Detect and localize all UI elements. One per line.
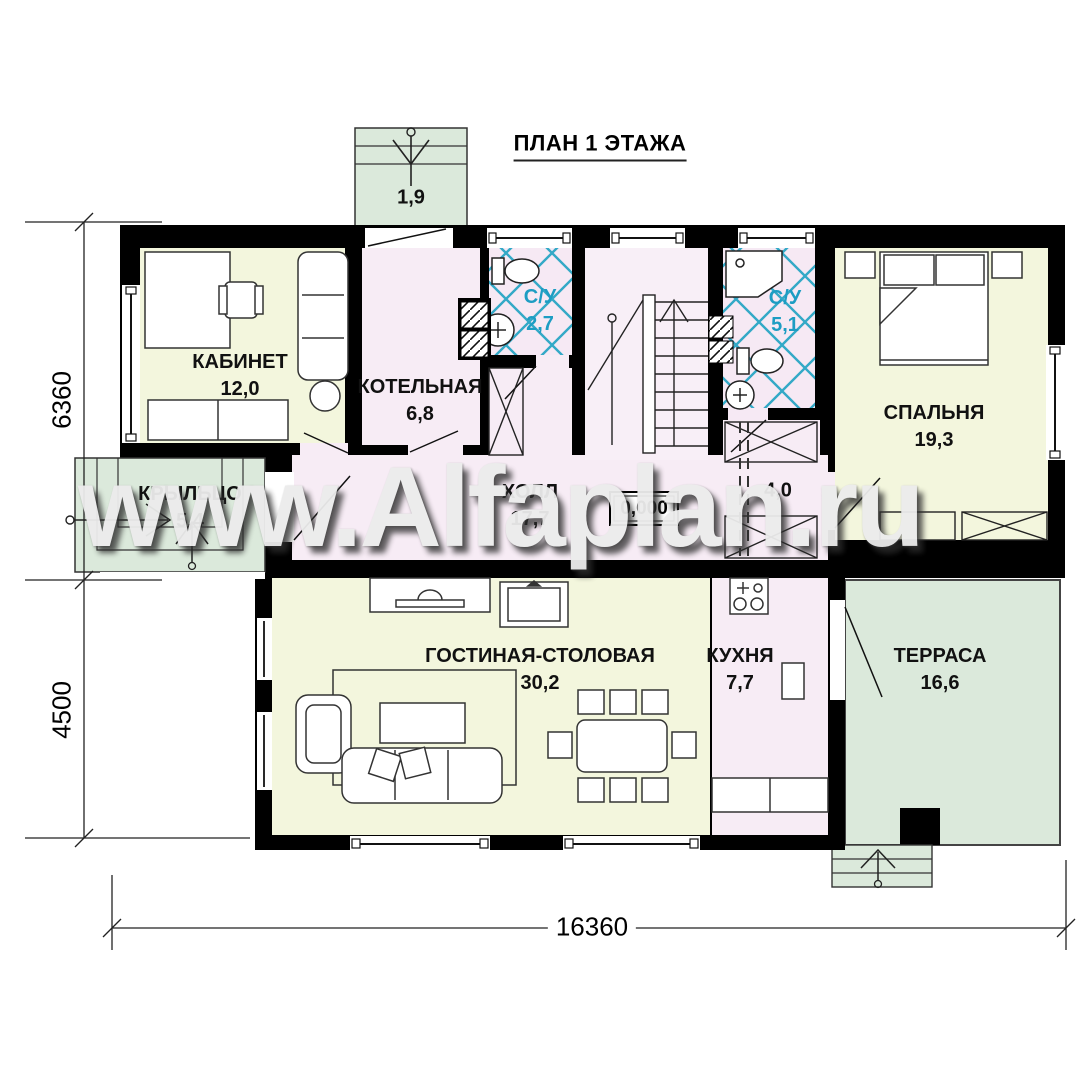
entry-porch xyxy=(355,128,467,228)
room-label-spalnya: СПАЛЬНЯ 19,3 xyxy=(884,400,985,454)
closet-near-su xyxy=(489,368,572,455)
chair-icon xyxy=(610,778,636,802)
room-label-entry-porch: 1,9 xyxy=(397,185,425,212)
terrace-steps xyxy=(832,845,932,888)
sofa-icon xyxy=(298,252,348,380)
room-label-corridor: 4,0 xyxy=(764,478,792,505)
side-table-icon xyxy=(310,381,340,411)
desk-icon xyxy=(145,252,230,348)
chair-icon xyxy=(225,282,257,318)
floor-plan-drawing xyxy=(0,0,1080,1080)
room-holl xyxy=(292,455,828,560)
dimension-left-top: 6360 xyxy=(47,365,78,435)
dimension-bottom: 16360 xyxy=(548,912,636,943)
toilet-icon xyxy=(737,348,749,374)
floor-plan-page: ПЛАН 1 ЭТАЖА 1,9 КАБИНЕТ 12,0 КОТЕЛЬНАЯ … xyxy=(0,0,1080,1080)
chair-icon xyxy=(578,778,604,802)
coffee-table-icon xyxy=(380,703,465,743)
room-label-kotelnaya: КОТЕЛЬНАЯ 6,8 xyxy=(358,374,483,428)
room-label-kabinet: КАБИНЕТ 12,0 xyxy=(192,349,287,403)
nightstand-icon xyxy=(992,252,1022,278)
dining-table-icon xyxy=(577,720,667,772)
room-label-kryltso: КРЫЛЬЦО 5,4 xyxy=(138,481,242,535)
nightstand-icon xyxy=(845,252,875,278)
cabinet-icon xyxy=(782,663,804,699)
room-label-su-small: С/У 2,7 xyxy=(524,284,556,338)
terrace xyxy=(832,580,1060,888)
room-label-su-big: С/У 5,1 xyxy=(769,285,801,339)
page-title: ПЛАН 1 ЭТАЖА xyxy=(514,131,687,162)
room-label-gostinaya: ГОСТИНАЯ-СТОЛОВАЯ 30,2 xyxy=(425,643,655,697)
chair-icon xyxy=(642,778,668,802)
toilet-icon xyxy=(492,258,504,284)
elevation-mark: 0,000 xyxy=(620,498,668,520)
dimension-left-bottom: 4500 xyxy=(47,675,78,745)
room-label-holl: ХОЛЛ 17,7 xyxy=(502,479,558,533)
room-label-terrasa: ТЕРРАСА 16,6 xyxy=(894,643,987,697)
room-label-kuhnya: КУХНЯ 7,7 xyxy=(706,643,773,697)
pillow-icon xyxy=(399,747,431,779)
chair-icon xyxy=(672,732,696,758)
chair-icon xyxy=(548,732,572,758)
terrace-column xyxy=(900,808,940,845)
